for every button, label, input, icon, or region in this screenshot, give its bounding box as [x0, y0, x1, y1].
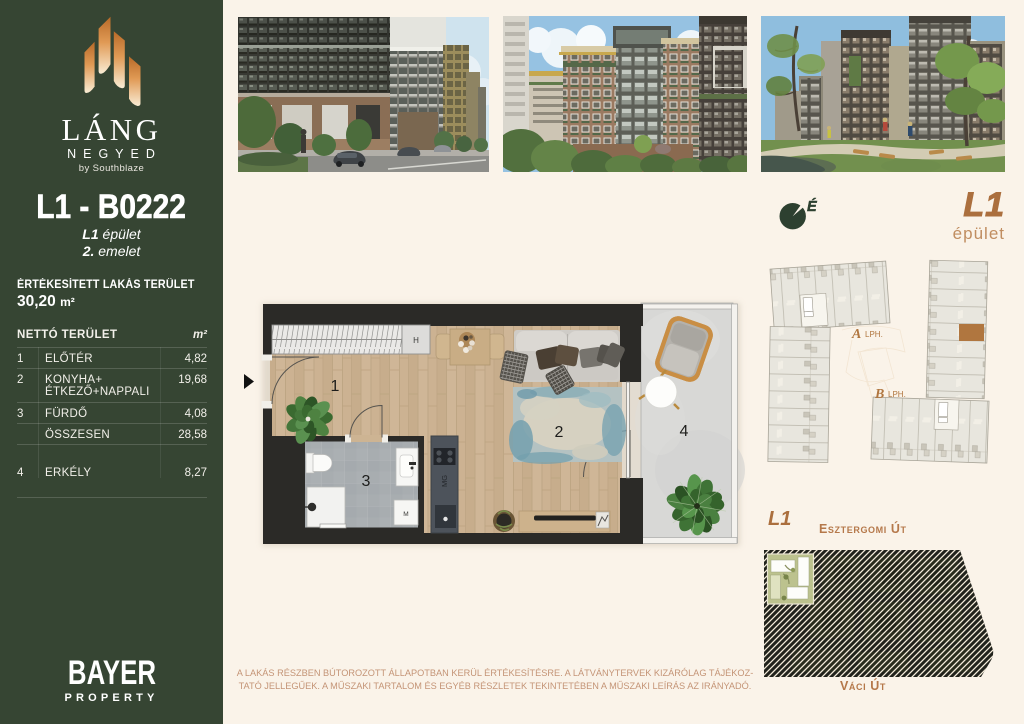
svg-text:1: 1 — [331, 378, 340, 395]
svg-text:MG: MG — [440, 475, 449, 487]
svg-text:H: H — [413, 336, 419, 345]
svg-text:4: 4 — [680, 423, 689, 440]
svg-text:2: 2 — [555, 424, 564, 441]
svg-text:3: 3 — [362, 473, 371, 490]
svg-text:A: A — [851, 327, 861, 342]
svg-text:B: B — [874, 387, 884, 402]
svg-text:É: É — [807, 198, 818, 215]
svg-text:M: M — [403, 511, 408, 518]
svg-text:LPH.: LPH. — [865, 330, 883, 339]
svg-text:LPH.: LPH. — [888, 390, 906, 399]
